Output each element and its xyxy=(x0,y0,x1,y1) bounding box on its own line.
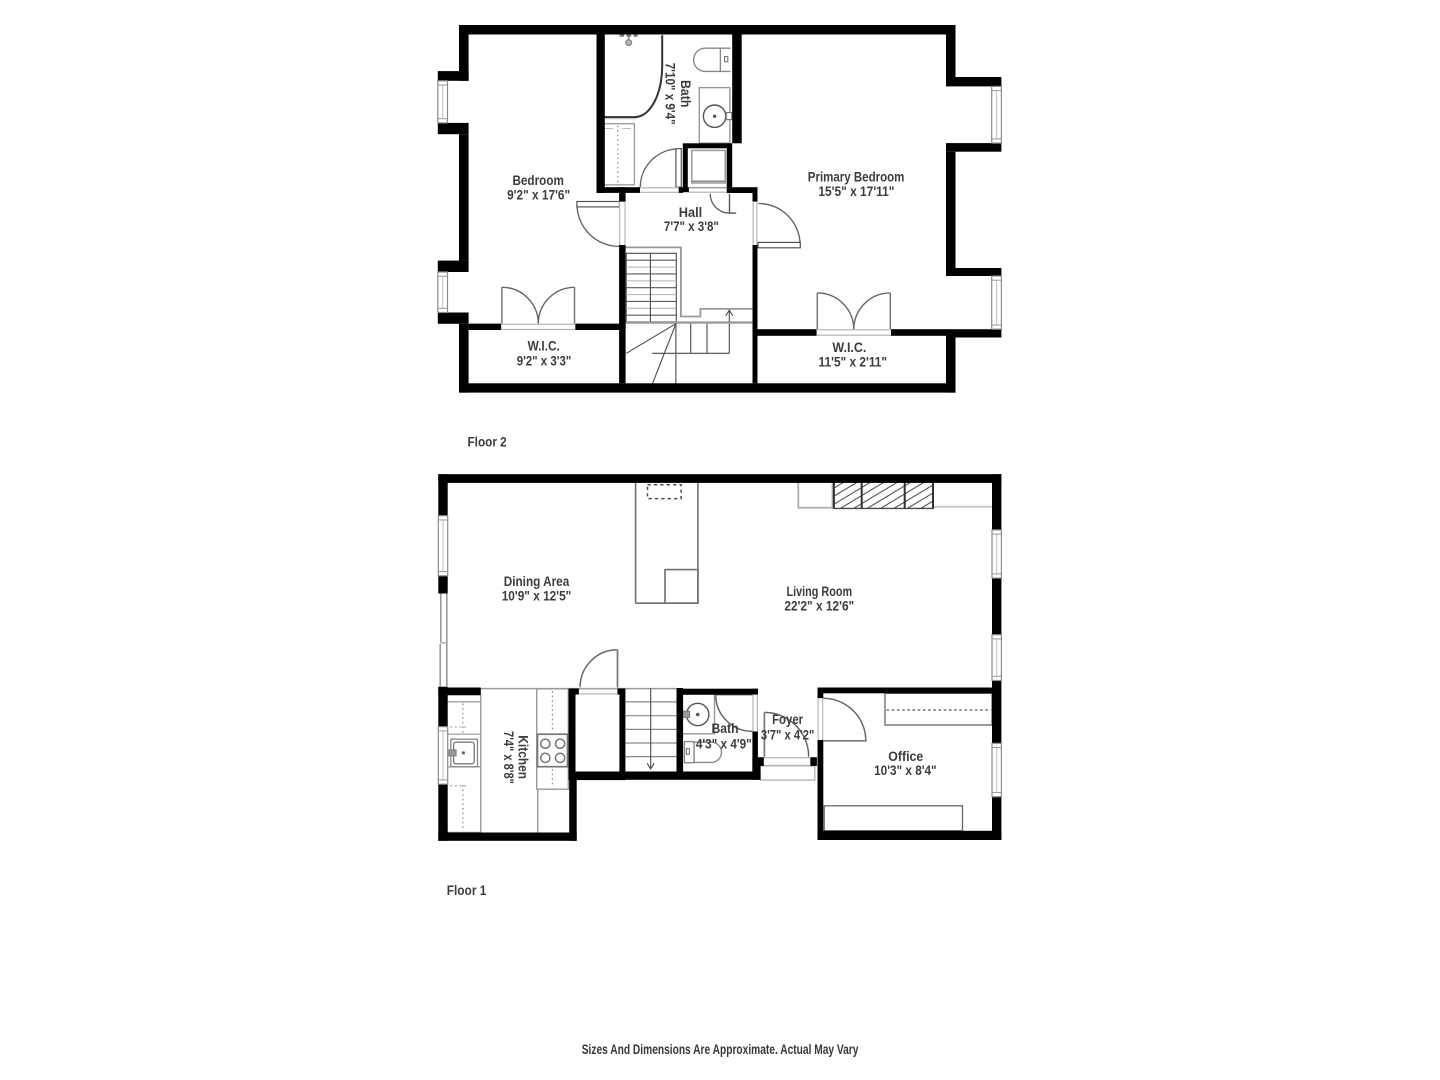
svg-text:7'10" x 9'4": 7'10" x 9'4" xyxy=(663,63,679,125)
svg-text:W.I.C.: W.I.C. xyxy=(528,337,560,353)
svg-text:W.I.C.: W.I.C. xyxy=(832,339,866,355)
svg-text:22'2" x 12'6": 22'2" x 12'6" xyxy=(784,598,854,614)
svg-text:7'7" x 3'8": 7'7" x 3'8" xyxy=(664,218,719,234)
svg-text:Bath: Bath xyxy=(678,80,694,108)
svg-text:15'5" x 17'11": 15'5" x 17'11" xyxy=(818,183,894,199)
svg-text:Floor 2: Floor 2 xyxy=(468,433,507,449)
svg-text:4'3" x 4'9": 4'3" x 4'9" xyxy=(696,736,752,752)
svg-text:Sizes And Dimensions Are Appro: Sizes And Dimensions Are Approximate. Ac… xyxy=(582,1042,859,1057)
svg-text:Floor 1: Floor 1 xyxy=(447,882,487,898)
svg-text:10'3" x 8'4": 10'3" x 8'4" xyxy=(874,762,937,778)
svg-text:7'4" x 8'8": 7'4" x 8'8" xyxy=(501,731,517,784)
svg-text:3'7" x 4'2": 3'7" x 4'2" xyxy=(761,726,814,742)
svg-text:11'5" x 2'11": 11'5" x 2'11" xyxy=(819,354,888,370)
svg-text:Kitchen: Kitchen xyxy=(516,735,532,779)
svg-text:Foyer: Foyer xyxy=(772,711,803,727)
svg-text:9'2" x 3'3": 9'2" x 3'3" xyxy=(517,352,572,368)
svg-text:9'2" x 17'6": 9'2" x 17'6" xyxy=(507,186,570,202)
svg-text:Bath: Bath xyxy=(711,720,738,736)
svg-text:10'9" x 12'5": 10'9" x 12'5" xyxy=(502,588,572,604)
